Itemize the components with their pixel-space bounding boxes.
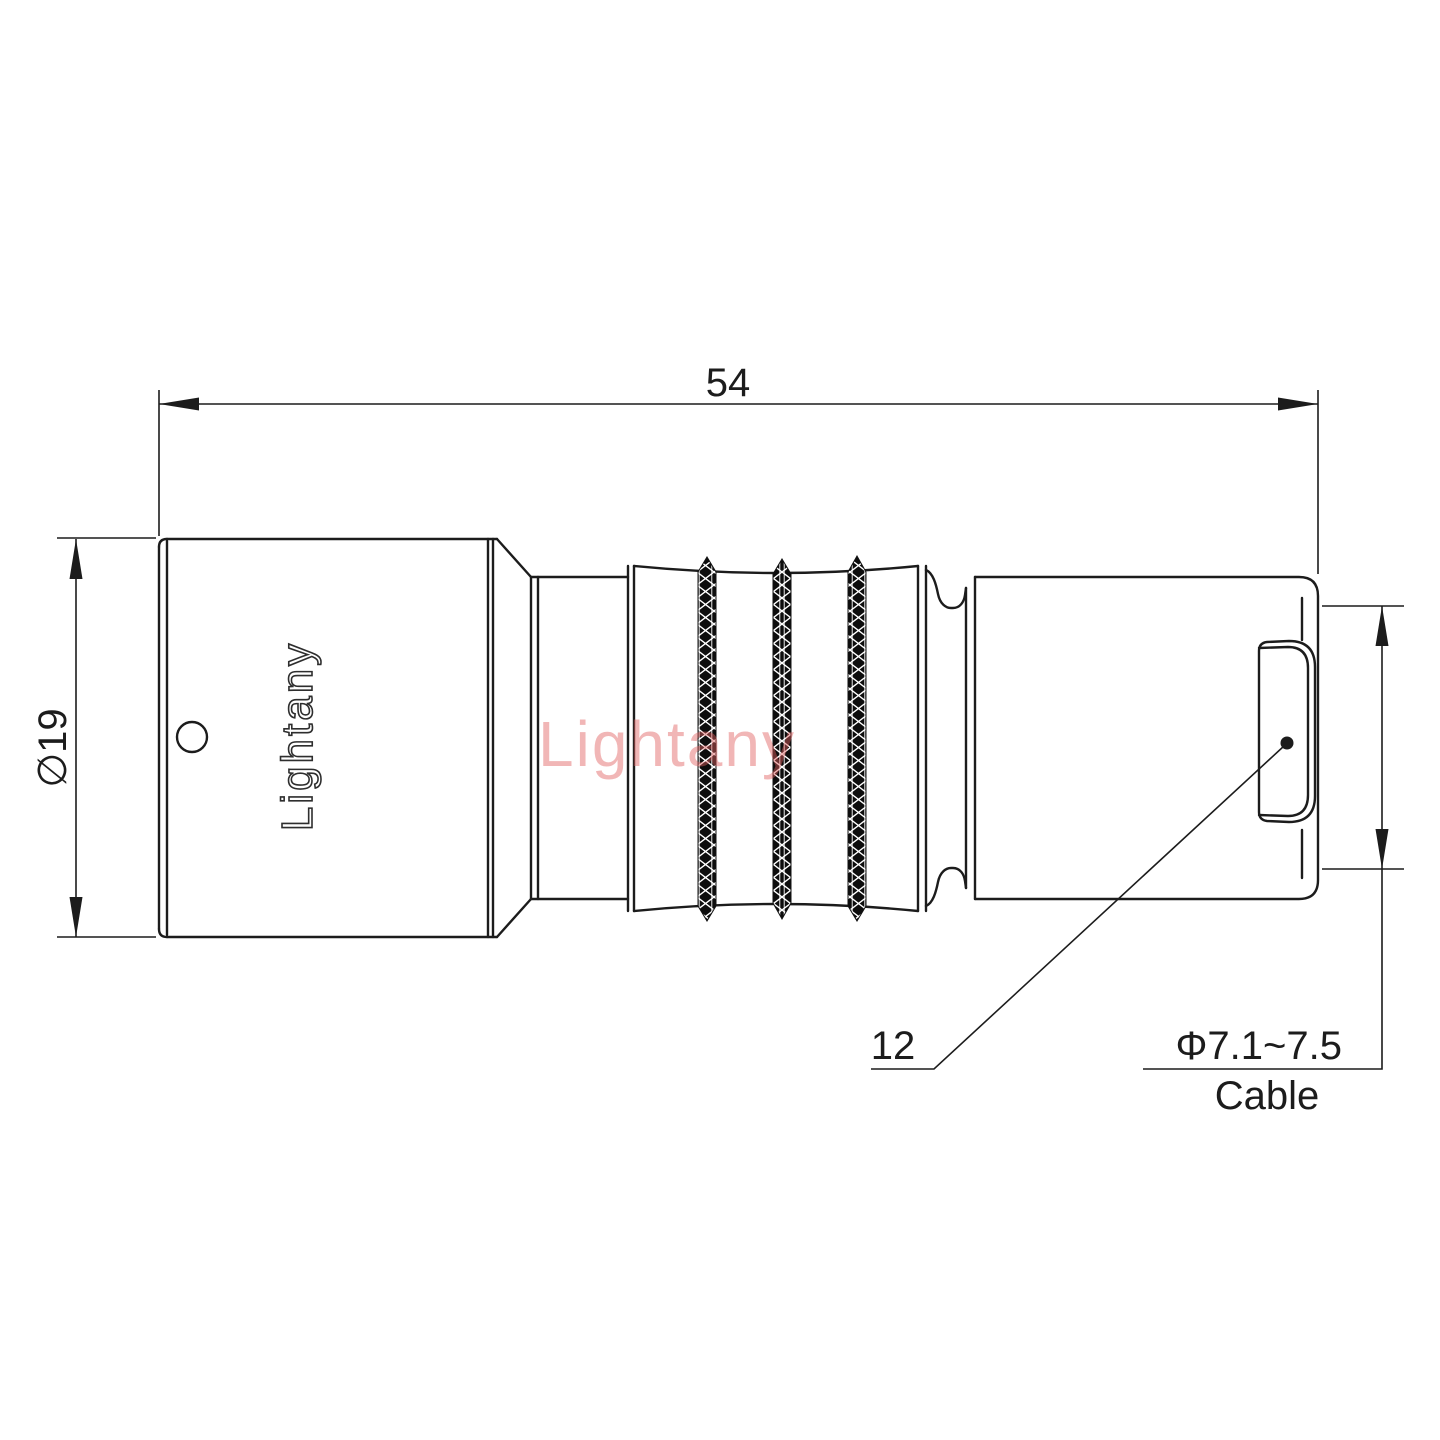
- rear-body: [975, 577, 1318, 899]
- chamfer-top: [497, 539, 531, 577]
- boot-leader-line: [871, 746, 1284, 1069]
- neck-groove: [926, 570, 966, 906]
- dimension-label-54: 54: [706, 361, 751, 405]
- brand-engraving: Lightany: [273, 641, 322, 831]
- cable-word-label: Cable: [1215, 1074, 1320, 1118]
- technical-drawing-page: Lightany: [0, 0, 1440, 1440]
- knurl-band-3: [848, 556, 866, 921]
- front-shell: Lightany: [159, 539, 531, 937]
- dimension-cable-entry: Φ7.1~7.5 Cable: [1143, 606, 1404, 1118]
- cable-diameter-label: Φ7.1~7.5: [1176, 1024, 1342, 1068]
- shell-hole: [177, 722, 207, 752]
- dimension-label-19: ∅19: [31, 708, 75, 787]
- cable-bushing: [1259, 641, 1315, 822]
- dimension-overall-length: 54: [159, 361, 1318, 574]
- dimension-boot: 12: [871, 746, 1284, 1069]
- watermark-text: Lightany: [538, 708, 796, 780]
- dimension-front-diameter: ∅19: [31, 538, 156, 937]
- connector-drawing: Lightany: [0, 0, 1440, 1440]
- chamfer-bottom: [497, 899, 531, 937]
- boot-label-12: 12: [871, 1024, 916, 1068]
